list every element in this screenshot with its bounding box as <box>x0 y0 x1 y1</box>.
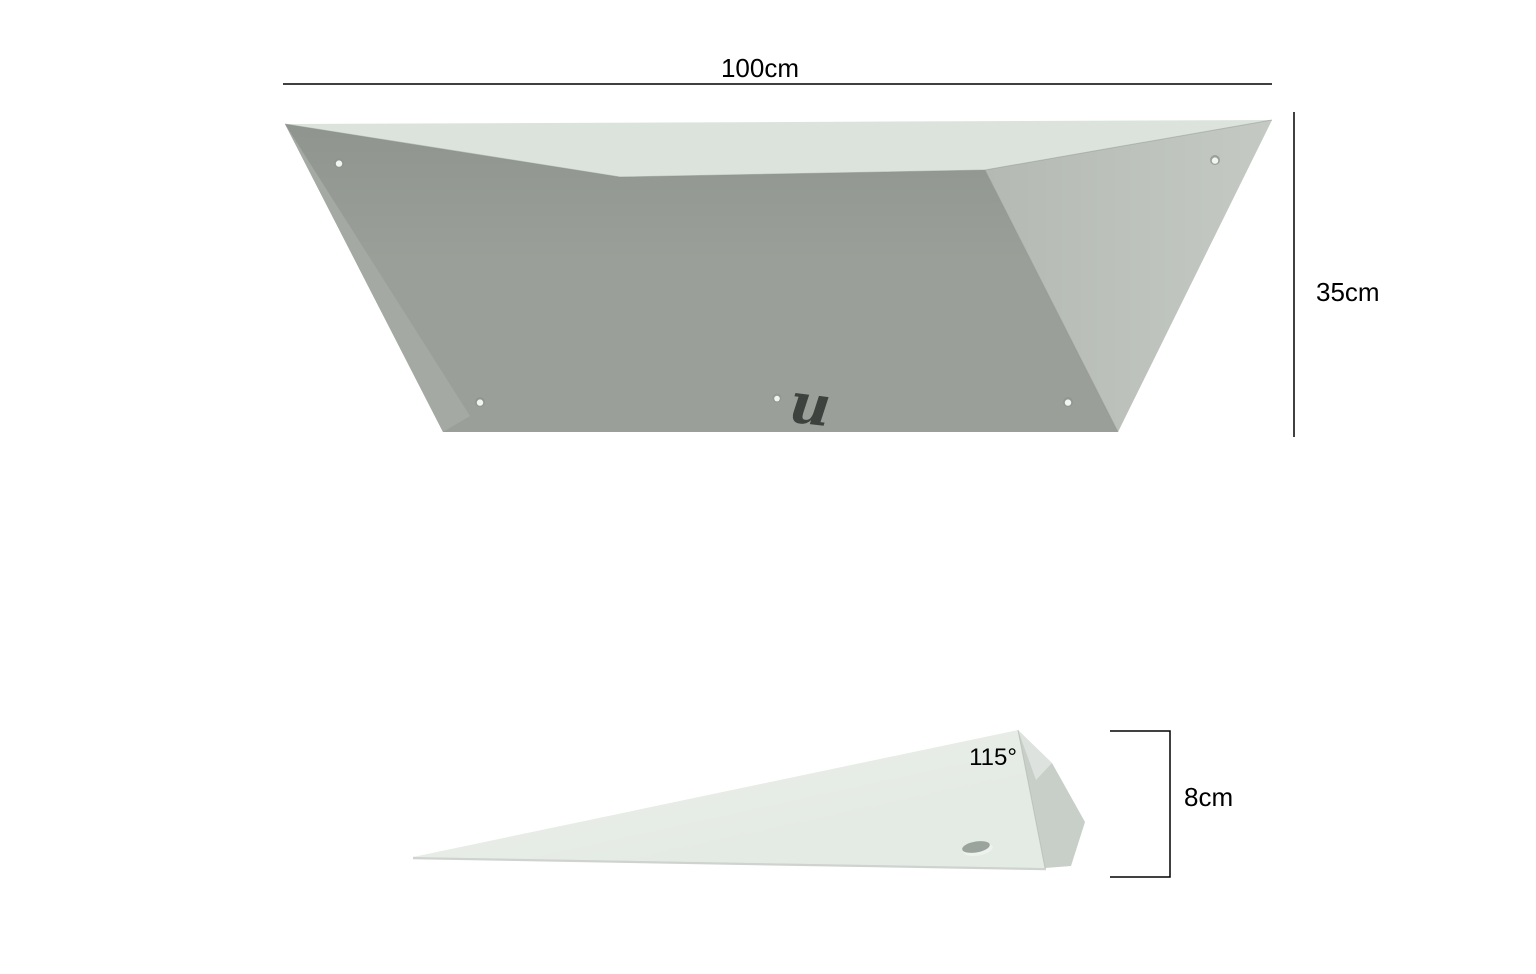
screw-hole <box>1210 155 1220 165</box>
width-dimension-label: 100cm <box>721 53 799 83</box>
depth-dimension-label: 8cm <box>1184 782 1233 812</box>
drawing-canvas: u 100cm 35cm 115° 8cm <box>0 0 1536 974</box>
screw-hole <box>475 397 485 407</box>
screw-hole <box>334 158 344 168</box>
dimension-drawing: u 100cm 35cm 115° 8cm <box>0 0 1536 974</box>
screw-hole <box>773 394 782 403</box>
screw-hole <box>1063 397 1073 407</box>
height-dimension-label: 35cm <box>1316 277 1380 307</box>
brand-logo: u <box>786 370 834 440</box>
angle-label: 115° <box>969 744 1017 771</box>
